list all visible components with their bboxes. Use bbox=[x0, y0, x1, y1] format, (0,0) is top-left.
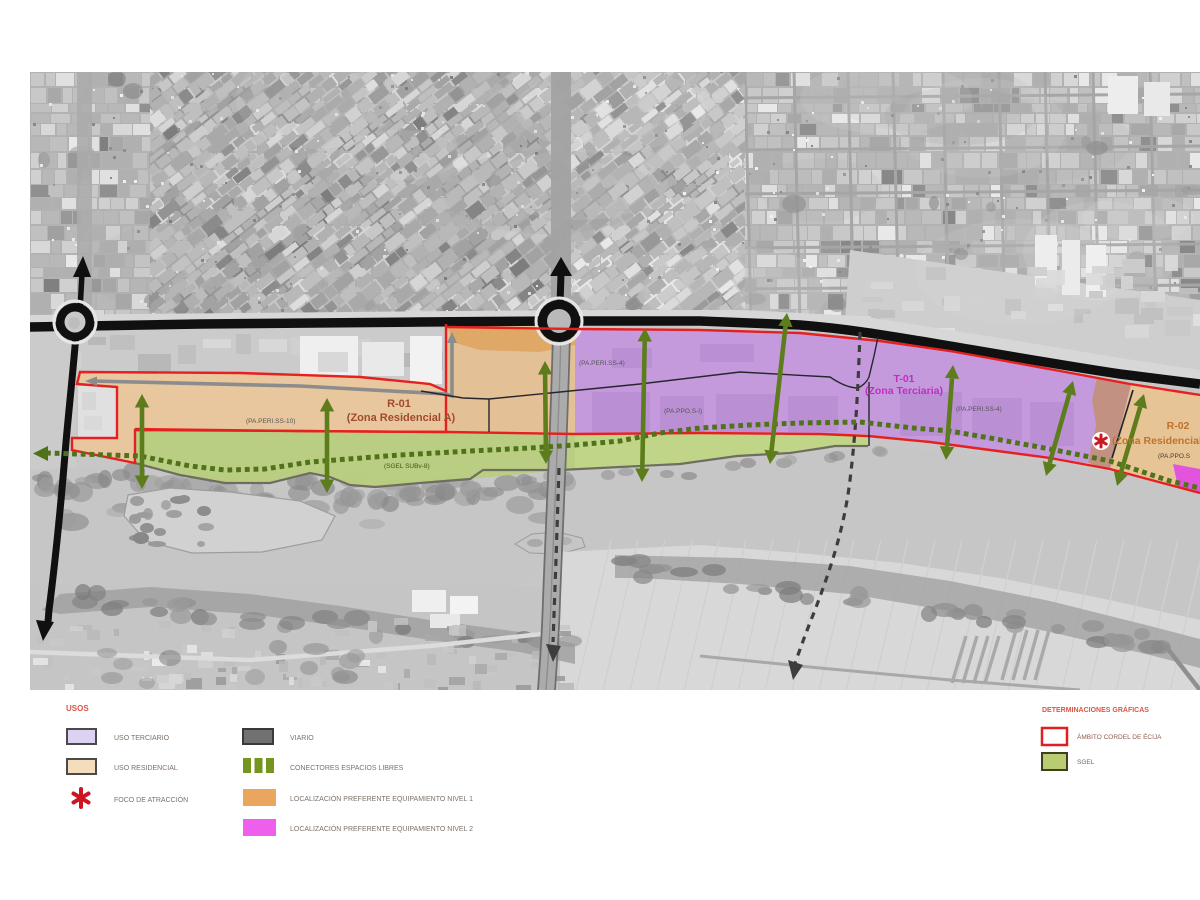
svg-text:(Zona Residencial A): (Zona Residencial A) bbox=[347, 412, 456, 424]
svg-text:(PA.PERI.SS-4): (PA.PERI.SS-4) bbox=[579, 360, 625, 367]
svg-text:(PA.PERI.SS-10): (PA.PERI.SS-10) bbox=[246, 418, 295, 425]
svg-text:(Zona Terciaria): (Zona Terciaria) bbox=[865, 385, 943, 397]
svg-text:SGEL: SGEL bbox=[1077, 759, 1095, 766]
svg-text:(PA.PPO.S-I): (PA.PPO.S-I) bbox=[664, 408, 702, 415]
svg-text:T-01: T-01 bbox=[893, 373, 914, 385]
svg-text:USO TERCIARIO: USO TERCIARIO bbox=[114, 735, 170, 742]
svg-text:ÁMBITO CORDEL DE ÉCIJA: ÁMBITO CORDEL DE ÉCIJA bbox=[1077, 732, 1162, 741]
svg-text:FOCO DE ATRACCIÓN: FOCO DE ATRACCIÓN bbox=[114, 795, 188, 804]
svg-text:LOCALIZACIÓN PREFERENTE EQUIPA: LOCALIZACIÓN PREFERENTE EQUIPAMIENTO NIV… bbox=[290, 824, 473, 833]
svg-text:LOCALIZACIÓN PREFERENTE EQUIPA: LOCALIZACIÓN PREFERENTE EQUIPAMIENTO NIV… bbox=[290, 794, 473, 803]
svg-text:DETERMINACIONES GRÁFICAS: DETERMINACIONES GRÁFICAS bbox=[1042, 705, 1149, 714]
svg-text:CONECTORES ESPACIOS LIBRES: CONECTORES ESPACIOS LIBRES bbox=[290, 765, 404, 772]
svg-text:(PA.PERI.SS-4): (PA.PERI.SS-4) bbox=[956, 406, 1002, 413]
svg-text:(SGEL SUBv-8): (SGEL SUBv-8) bbox=[384, 463, 430, 470]
svg-text:(PA.PPO.S: (PA.PPO.S bbox=[1158, 453, 1191, 460]
svg-text:R-02: R-02 bbox=[1167, 420, 1190, 432]
svg-text:R-01: R-01 bbox=[387, 398, 411, 410]
svg-text:USO RESIDENCIAL: USO RESIDENCIAL bbox=[114, 765, 178, 772]
svg-text:(Zona Residencial: (Zona Residencial bbox=[1112, 435, 1200, 447]
svg-text:USOS: USOS bbox=[66, 704, 89, 713]
svg-text:VIARIO: VIARIO bbox=[290, 735, 314, 742]
